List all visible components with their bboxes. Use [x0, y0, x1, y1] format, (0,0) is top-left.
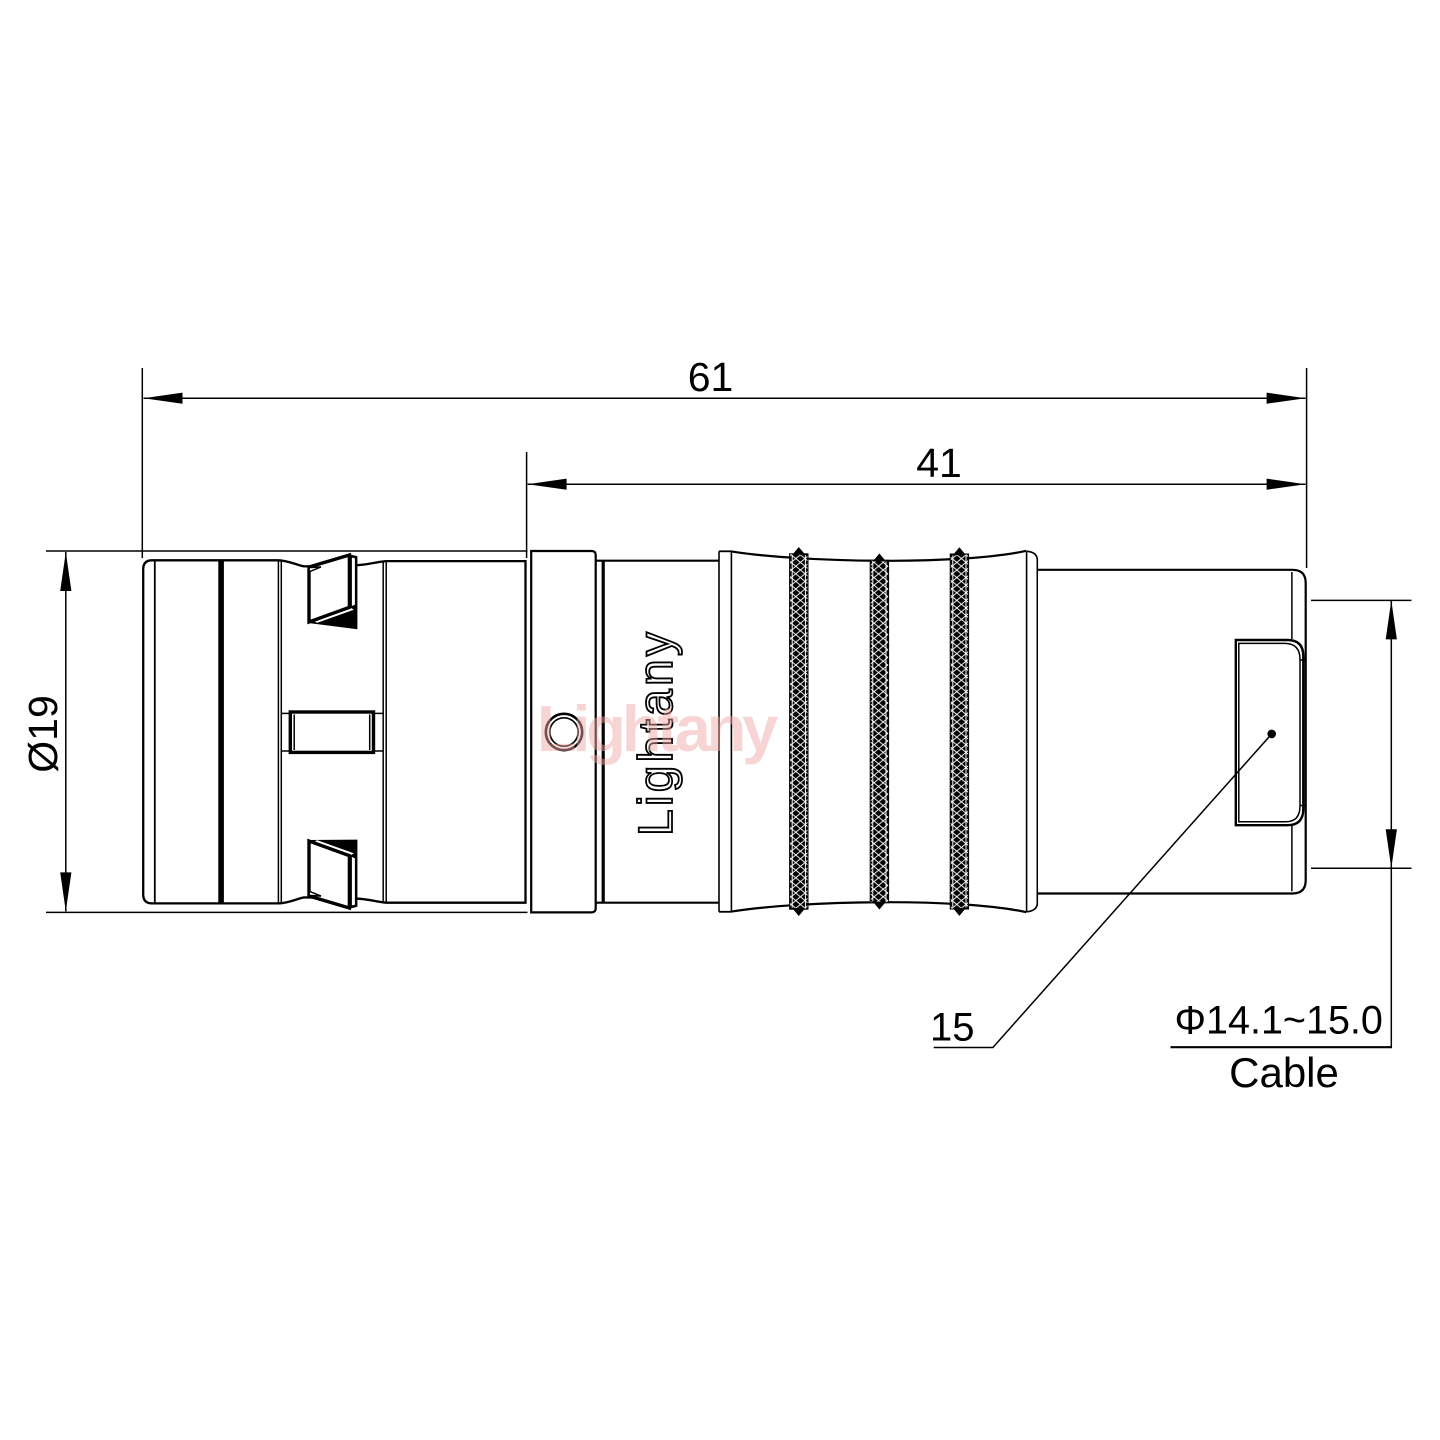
svg-text:15: 15 [930, 1005, 975, 1049]
svg-text:61: 61 [688, 354, 734, 400]
svg-text:41: 41 [916, 440, 962, 486]
svg-text:Cable: Cable [1229, 1049, 1339, 1096]
svg-text:Φ14.1~15.0: Φ14.1~15.0 [1175, 999, 1383, 1043]
svg-text:Lightany: Lightany [537, 692, 778, 765]
svg-text:Ø19: Ø19 [20, 695, 66, 773]
